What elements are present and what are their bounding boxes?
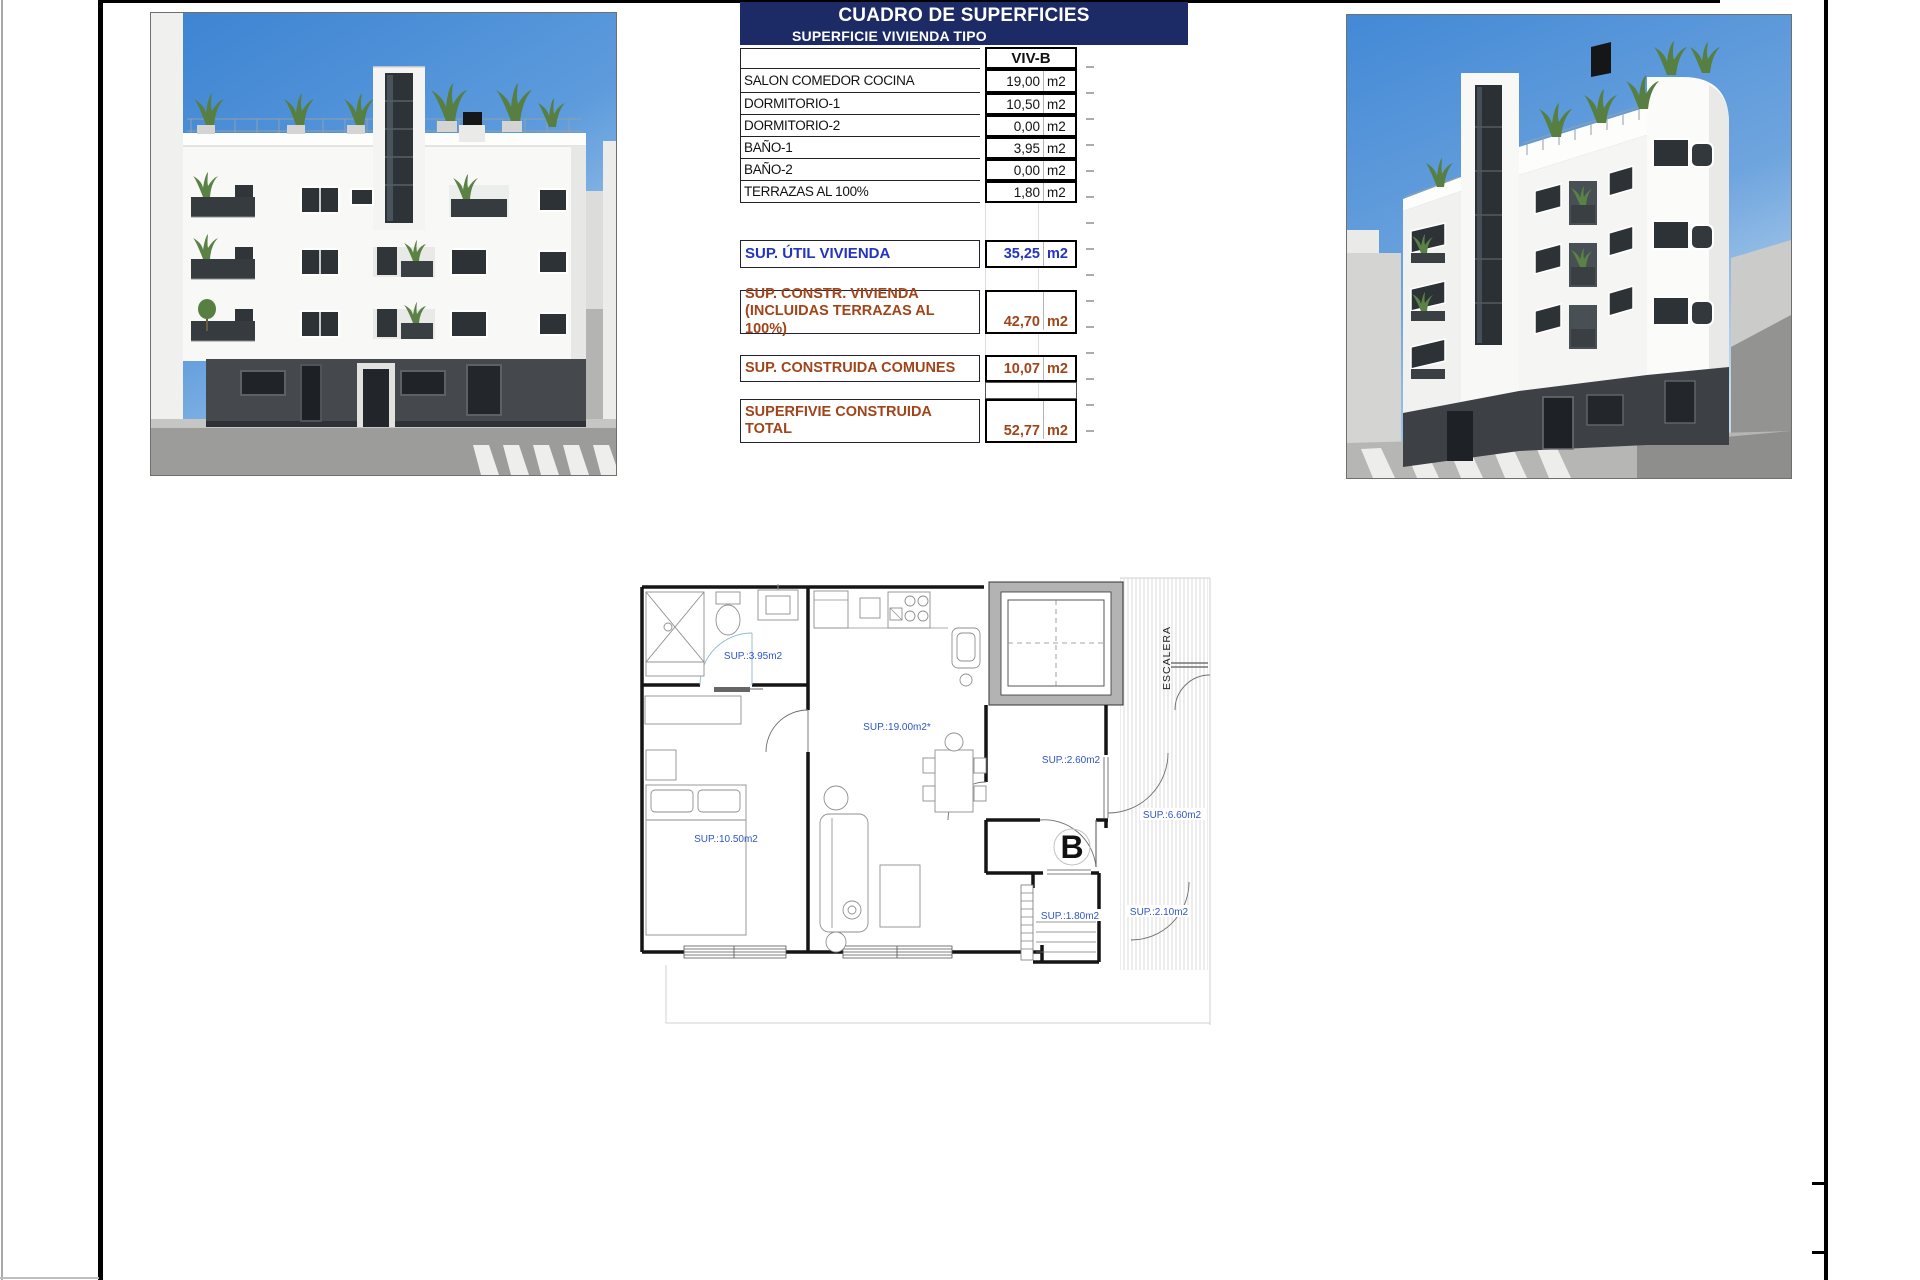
surface-table-subtitle: SUPERFICIE VIVIENDA TIPO <box>792 28 987 44</box>
cut-mark <box>1086 248 1094 250</box>
cut-mark <box>1086 196 1094 198</box>
corner-perspective-graphic <box>1347 15 1791 478</box>
chair <box>974 786 986 801</box>
table-row-value: 0,00m2 <box>985 115 1077 137</box>
summary-value-comunes: 10,07m2 <box>985 355 1077 382</box>
pillow <box>651 790 693 812</box>
wardrobe <box>645 696 741 724</box>
chair <box>945 733 963 751</box>
frame-tick-mark <box>1812 1251 1828 1254</box>
toilet <box>716 605 740 635</box>
cut-mark <box>1086 144 1094 146</box>
terrace-details <box>1021 885 1096 960</box>
table-row-label: BAÑO-1 <box>740 137 980 159</box>
cut-mark <box>1086 66 1094 68</box>
cut-mark <box>1086 300 1094 302</box>
sink-basin <box>766 596 790 614</box>
chimney <box>1591 42 1611 77</box>
table-row-value: 19,00m2 <box>985 69 1077 93</box>
cut-mark <box>1086 274 1094 276</box>
kitchen-fixtures <box>814 591 980 686</box>
chair <box>974 758 986 773</box>
room-label-hall: SUP.:2.60m2 <box>1042 755 1101 766</box>
room-label-bedroom: SUP.:10.50m2 <box>694 834 758 845</box>
summary-label-total: SUPERFIVIE CONSTRUIDA TOTAL <box>740 399 980 443</box>
elevator-tower <box>1475 85 1502 345</box>
elevator-shaft <box>989 582 1123 705</box>
sheet-edge-line-bottom <box>0 1277 99 1279</box>
room-label-terrace: SUP.:1.80m2 <box>1041 911 1100 922</box>
surface-table-title: CUADRO DE SUPERFICIES <box>740 5 1188 27</box>
cut-mark <box>1086 92 1094 94</box>
bedroom-furniture <box>645 696 746 935</box>
cut-mark <box>1086 352 1094 354</box>
windows <box>684 757 1108 958</box>
table-row-value: 0,00m2 <box>985 159 1077 181</box>
summary-value-total: 52,77m2 <box>985 399 1077 443</box>
cut-mark <box>1086 222 1094 224</box>
room-label-landing: SUP.:6.60m2 <box>1143 810 1202 821</box>
room-label-living: SUP.:19.00m2* <box>863 722 931 733</box>
table-row-label: TERRAZAS AL 100% <box>740 181 980 203</box>
summary-label-constr: SUP. CONSTR. VIVIENDA (INCLUIDAS TERRAZA… <box>740 290 980 334</box>
table-row-label: DORMITORIO-2 <box>740 115 980 137</box>
surface-table-header: CUADRO DE SUPERFICIES SUPERFICIE VIVIEND… <box>740 2 1188 45</box>
unit-letter: B <box>1060 829 1083 865</box>
summary-value-util: 35,25m2 <box>985 240 1077 268</box>
summary-label-comunes: SUP. CONSTRUIDA COMUNES <box>740 355 980 382</box>
surface-table: CUADRO DE SUPERFICIES SUPERFICIE VIVIEND… <box>740 0 1210 470</box>
stairs-label: ESCALERA <box>1161 626 1173 690</box>
side-table <box>826 932 846 952</box>
pillow <box>698 790 740 812</box>
cut-mark <box>1086 430 1094 432</box>
cut-mark <box>1086 326 1094 328</box>
tv-unit <box>880 865 920 927</box>
room-label-bathroom: SUP.:3.95m2 <box>724 651 783 662</box>
column-header-viv-b: VIV-B <box>985 47 1077 69</box>
kitchen-cabinet <box>860 598 880 618</box>
side-table <box>824 786 848 810</box>
floor-plan-graphic: B SUP.:3.95m2 SUP.:19.00m2* SUP.:10.50m2… <box>630 570 1230 1050</box>
building-corner-perspective-render <box>1346 14 1792 479</box>
drain <box>960 674 972 686</box>
empty-value-cell <box>985 382 1077 399</box>
cut-mark <box>1086 118 1094 120</box>
sheet-frame-left <box>98 0 103 1280</box>
living-furniture <box>820 733 986 952</box>
frame-tick-mark <box>1812 1182 1828 1185</box>
table-row-value: 10,50m2 <box>985 93 1077 115</box>
cut-mark <box>1086 404 1094 406</box>
summary-label-util: SUP. ÚTIL VIVIENDA <box>740 240 980 268</box>
floor-plan: B SUP.:3.95m2 SUP.:19.00m2* SUP.:10.50m2… <box>630 570 1230 1050</box>
building-front-elevation-render <box>150 12 617 476</box>
fridge <box>814 591 848 628</box>
cut-mark <box>1086 170 1094 172</box>
room-label-entry: SUP.:2.10m2 <box>1130 907 1189 918</box>
table-row-value: 1,80m2 <box>985 181 1077 203</box>
ground-floor <box>206 359 586 427</box>
bathroom-slide-door <box>714 687 750 692</box>
nightstand <box>646 750 676 780</box>
front-elevation-graphic <box>151 13 616 475</box>
bathroom-fixtures <box>646 584 798 676</box>
toilet-tank <box>716 592 740 604</box>
sheet-frame-right <box>1824 0 1828 1280</box>
left-wing-windows <box>1411 223 1445 379</box>
plan-sheet: CUADRO DE SUPERFICIES SUPERFICIE VIVIEND… <box>0 0 1920 1280</box>
table-row-label: DORMITORIO-1 <box>740 93 980 115</box>
summary-value-constr: 42,70m2 <box>985 290 1077 334</box>
chair <box>923 786 935 801</box>
dining-table <box>935 750 973 812</box>
table-row-spacer <box>740 48 980 69</box>
elevator-tower <box>373 67 425 230</box>
bedroom-door-arc <box>766 710 808 752</box>
chair <box>923 758 935 773</box>
cut-mark <box>1086 378 1094 380</box>
table-row-value: 3,95m2 <box>985 137 1077 159</box>
sheet-edge-line <box>1 0 3 1280</box>
table-row-label: SALON COMEDOR COCINA <box>740 69 980 93</box>
table-row-label: BAÑO-2 <box>740 159 980 181</box>
